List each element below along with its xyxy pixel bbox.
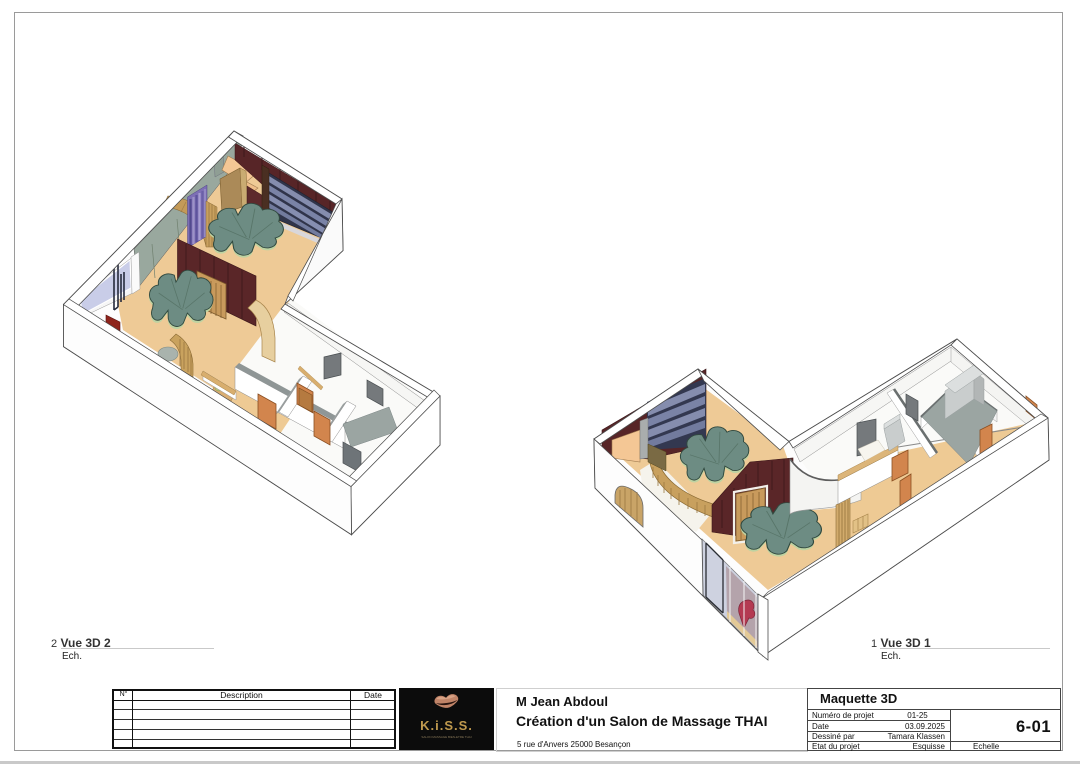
svg-text:K.i.S.S.: K.i.S.S. (420, 718, 473, 733)
svg-text:SALON MASSAGE BIEN-ETRE THAI: SALON MASSAGE BIEN-ETRE THAI (421, 735, 471, 739)
